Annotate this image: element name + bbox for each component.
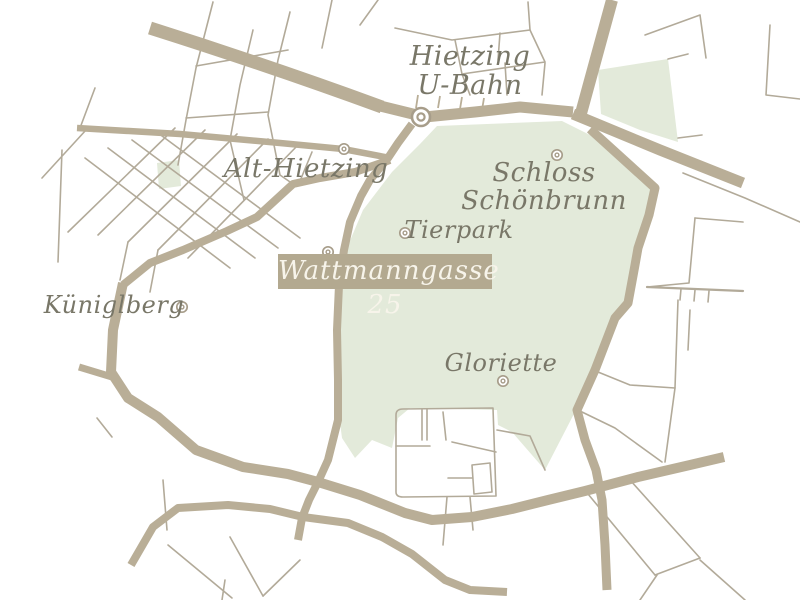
gloriette-label: Gloriette: [445, 351, 558, 377]
gloriette-marker: [498, 376, 508, 386]
schloss-schoenbrunn-label: Schloss Schönbrunn: [461, 159, 627, 215]
schloss-line1: Schloss: [461, 159, 627, 187]
hietzing-ubahn-line1: Hietzing: [410, 42, 531, 71]
alt-hietzing-marker: [339, 144, 349, 154]
hietzing-ubahn-line2: U-Bahn: [410, 71, 531, 100]
hietzing-ubahn-label: Hietzing U-Bahn: [410, 42, 531, 100]
kueniglberg-label: Küniglberg: [44, 293, 184, 319]
ubahn-station-marker: [412, 108, 430, 126]
tierpark-label: Tierpark: [404, 218, 513, 244]
alt-hietzing-label: Alt-Hietzing: [224, 155, 389, 183]
map-canvas: Hietzing U-Bahn Alt-Hietzing Schloss Sch…: [0, 0, 800, 600]
south-stub-road: [298, 482, 318, 540]
main-diagonal-road: [150, 28, 382, 107]
schloss-line2: Schönbrunn: [461, 187, 627, 215]
station-road: [372, 104, 573, 117]
address-badge: Wattmanngasse 25: [278, 254, 492, 289]
